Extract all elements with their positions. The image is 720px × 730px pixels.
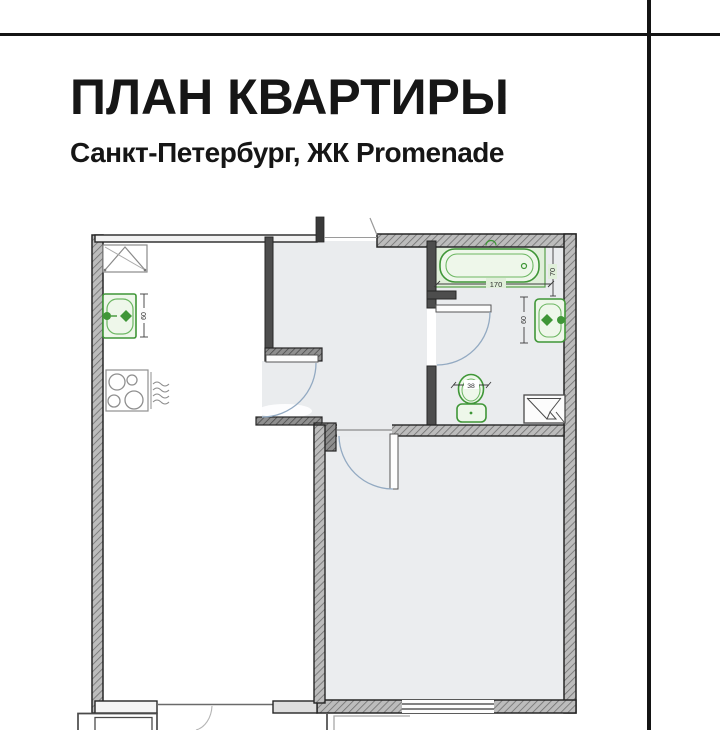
wall-top-kitchen <box>95 235 317 242</box>
floor-plan: 60 170 <box>0 0 720 730</box>
wall-bottom-mid <box>273 701 317 713</box>
washbasin-dim-label: 60 <box>521 316 528 324</box>
floors <box>258 241 564 700</box>
shower-tray-icon <box>524 395 565 423</box>
bedroom-door-leaf <box>390 434 398 489</box>
wall-bath-lower <box>427 366 436 427</box>
bathtub-width-label: 70 <box>548 268 557 276</box>
wall-bottom-left <box>95 701 157 713</box>
balcony-center-inner <box>334 716 410 730</box>
bedroom-floor <box>325 436 564 700</box>
kitchen-sink-dim-label: 60 <box>141 312 148 320</box>
stove-icon <box>106 370 169 411</box>
balconies <box>78 714 410 730</box>
kitchen-sink-icon <box>103 294 136 338</box>
bedroom-window <box>402 700 494 713</box>
washbasin-icon <box>535 299 565 342</box>
balcony-left-outline <box>78 714 157 730</box>
kitchen-sink-dimension: 60 <box>139 294 148 337</box>
toilet-dim-label: 38 <box>467 383 475 390</box>
wall-hall-bottom <box>256 417 322 425</box>
entrance-door-post <box>316 217 324 242</box>
kitchen-fixtures: 60 <box>103 245 169 411</box>
entrance-door-leaf <box>370 218 377 235</box>
wall-top-right <box>377 234 576 247</box>
wall-bedroom-left <box>314 425 325 703</box>
corner-cabinet-icon <box>103 245 147 272</box>
page: { "header": { "title": "ПЛАН КВАРТИРЫ", … <box>0 0 720 730</box>
kitchen-door-leaf <box>266 355 318 362</box>
bathroom-door-leaf <box>436 305 491 312</box>
balcony-left-inner <box>95 718 152 730</box>
wall-bath-nib <box>427 291 456 299</box>
wall-left <box>92 235 103 713</box>
wall-kitchen-hall <box>265 237 273 349</box>
heat-waves-icon <box>153 382 169 404</box>
hallway-floor <box>262 241 427 425</box>
floor-highlight <box>258 404 312 418</box>
balcony-door-swing-icon <box>196 706 212 730</box>
bathtub-length-label: 170 <box>490 280 503 289</box>
